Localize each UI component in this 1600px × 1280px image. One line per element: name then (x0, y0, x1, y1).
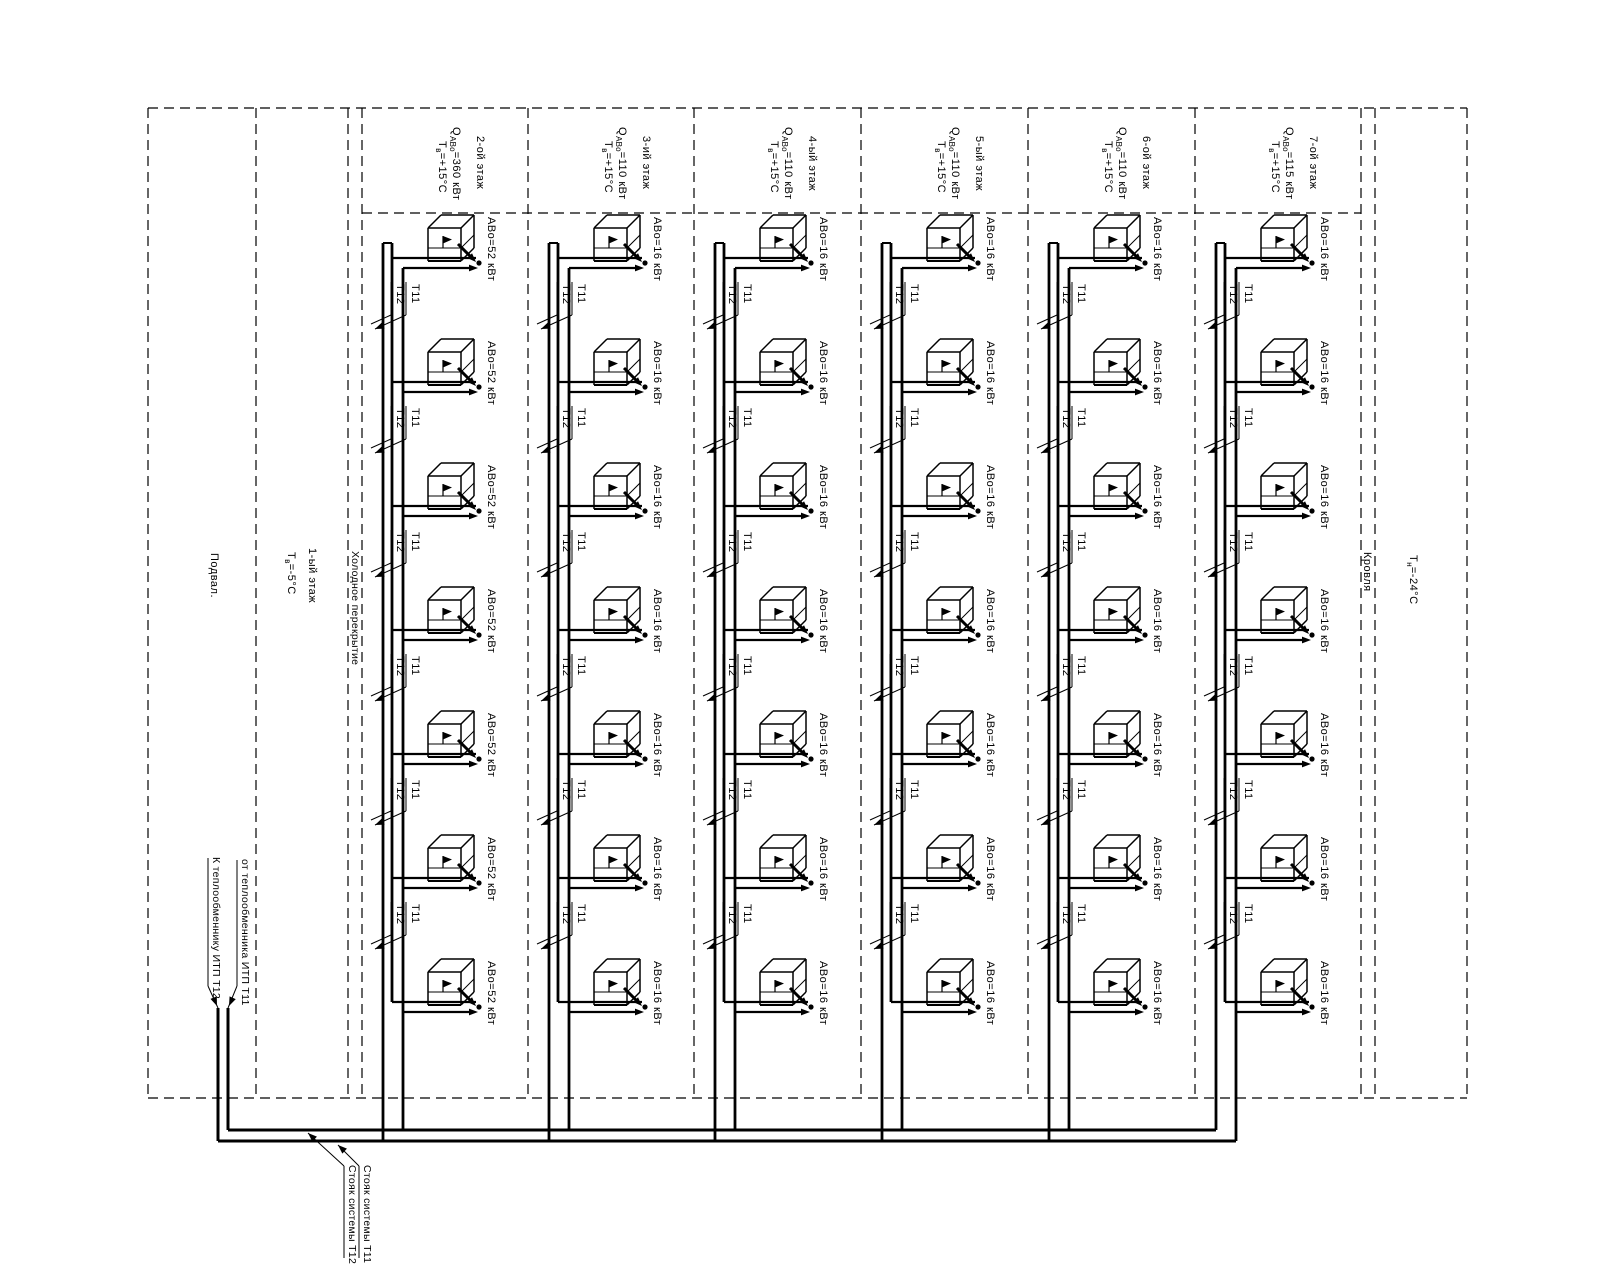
cube-edge (793, 215, 806, 228)
fan-flag-icon (1276, 980, 1285, 988)
riser-tag-return-label: Т12 (1226, 656, 1239, 676)
q-header-label: QАВо=110 кВт (615, 127, 628, 200)
cube-edge (1094, 215, 1107, 228)
riser-tag-supply-label: Т11 (1241, 780, 1254, 800)
cube-edge (760, 215, 773, 228)
riser-tag-return-label: Т12 (725, 284, 738, 304)
connection-dot (1142, 632, 1147, 637)
flow-arrow-icon (801, 885, 810, 892)
cube-edge (461, 835, 474, 848)
cube-midline (960, 359, 973, 372)
connection-dot (975, 880, 980, 885)
riser-tag-supply-label: Т11 (907, 780, 920, 800)
cube-midline (627, 855, 640, 868)
unit-power-label: АВо=52 кВт (484, 217, 497, 281)
cube-edge (627, 587, 640, 600)
riser-tag-supply-label: Т11 (907, 408, 920, 428)
riser-tag-return-label: Т12 (892, 904, 905, 924)
connection-dot (808, 880, 813, 885)
cube-midline (960, 607, 973, 620)
flow-arrow-icon (1302, 1009, 1311, 1016)
riser-tag-return-label: Т12 (559, 656, 572, 676)
flow-arrow-icon (635, 513, 644, 520)
riser-tag-supply-label: Т11 (408, 780, 421, 800)
riser-tag-return-label: Т12 (393, 284, 406, 304)
floor-header-label: 5-ый этаж (972, 136, 985, 191)
flow-arrow-icon (635, 761, 644, 768)
fan-flag-icon (775, 980, 784, 988)
cube-edge (960, 959, 973, 972)
unit-power-label: АВо=52 кВт (484, 589, 497, 653)
unit-power-label: АВо=16 кВт (650, 465, 663, 529)
fan-flag-icon (1109, 856, 1118, 864)
flow-arrow-icon (968, 1009, 977, 1016)
fan-flag-icon (1109, 732, 1118, 740)
connection-dot (1309, 880, 1314, 885)
unit-power-label: АВо=16 кВт (816, 713, 829, 777)
cube-edge (594, 215, 607, 228)
cube-edge (627, 959, 640, 972)
cube-edge (760, 587, 773, 600)
cube-midline (793, 607, 806, 620)
unit-power-label: АВо=16 кВт (983, 837, 996, 901)
fan-flag-icon (1109, 360, 1118, 368)
cube-edge (428, 711, 441, 724)
temp-header-label: Тв=+15°С (767, 141, 780, 193)
riser-tag-supply-label: Т11 (740, 532, 753, 552)
riser-tag-return-label: Т12 (559, 780, 572, 800)
riser-tag-supply-label: Т11 (1241, 408, 1254, 428)
riser-tag-supply-label: Т11 (1241, 904, 1254, 924)
q-header-label: QАВо=360 кВт (449, 127, 462, 200)
cube-midline (627, 359, 640, 372)
cube-edge (627, 463, 640, 476)
cube-edge (461, 339, 474, 352)
cube-edge (1261, 711, 1274, 724)
cube-midline (793, 235, 806, 248)
riser-tag-supply-label: Т11 (740, 656, 753, 676)
unit-power-label: АВо=16 кВт (1317, 217, 1330, 281)
fan-flag-icon (1109, 484, 1118, 492)
flow-arrow-icon (801, 1009, 810, 1016)
unit-power-label: АВо=16 кВт (1317, 713, 1330, 777)
cube-edge (760, 463, 773, 476)
cube-midline (1294, 731, 1307, 744)
unit-power-label: АВо=52 кВт (484, 341, 497, 405)
riser-tag-supply-label: Т11 (740, 284, 753, 304)
flow-arrow-icon (968, 265, 977, 272)
riser-tag-supply-label: Т11 (574, 780, 587, 800)
connection-dot (1142, 756, 1147, 761)
connection-dot (476, 1004, 481, 1009)
riser-tag-return-label: Т12 (1059, 780, 1072, 800)
cube-edge (627, 215, 640, 228)
unit-power-label: АВо=16 кВт (650, 837, 663, 901)
cube-midline (1127, 483, 1140, 496)
cube-midline (1127, 235, 1140, 248)
fan-flag-icon (609, 608, 618, 616)
cube-edge (793, 835, 806, 848)
temp-header-label: Тв=+15°С (1101, 141, 1114, 193)
floor-header-label: 7-ой этаж (1306, 136, 1319, 189)
cube-edge (1094, 587, 1107, 600)
riser-tag-return-label: Т12 (1226, 780, 1239, 800)
cube-midline (1127, 731, 1140, 744)
flow-arrow-icon (635, 637, 644, 644)
unit-power-label: АВо=16 кВт (816, 341, 829, 405)
fan-flag-icon (1276, 360, 1285, 368)
riser-tag-supply-label: Т11 (907, 532, 920, 552)
cold-slab-label: Холодное перекрытие (348, 551, 361, 665)
cube-edge (760, 835, 773, 848)
basement-label: Подвал. (207, 553, 220, 598)
unit-power-label: АВо=16 кВт (1150, 465, 1163, 529)
cube-edge (960, 339, 973, 352)
riser-tag-supply-label: Т11 (740, 780, 753, 800)
unit-power-label: АВо=16 кВт (983, 713, 996, 777)
riser-tag-supply-label: Т11 (740, 408, 753, 428)
flow-arrow-icon (1135, 389, 1144, 396)
cube-edge (1294, 587, 1307, 600)
riser-tag-return-label: Т12 (1226, 408, 1239, 428)
cube-edge (428, 463, 441, 476)
floor-header-label: 2-ой этаж (473, 136, 486, 189)
fan-flag-icon (609, 484, 618, 492)
connection-dot (642, 508, 647, 513)
unit-power-label: АВо=16 кВт (1150, 589, 1163, 653)
cube-midline (461, 979, 474, 992)
cube-edge (1261, 959, 1274, 972)
unit-power-label: АВо=52 кВт (484, 961, 497, 1025)
fan-flag-icon (1276, 732, 1285, 740)
fan-flag-icon (1109, 236, 1118, 244)
connection-dot (476, 384, 481, 389)
unit-power-label: АВо=16 кВт (983, 589, 996, 653)
cube-edge (1094, 959, 1107, 972)
cube-edge (793, 711, 806, 724)
flow-arrow-icon (1135, 513, 1144, 520)
cube-midline (461, 483, 474, 496)
riser-tag-supply-label: Т11 (574, 408, 587, 428)
fan-flag-icon (942, 856, 951, 864)
riser-tag-return-label: Т12 (559, 284, 572, 304)
riser-tag-supply-label: Т11 (574, 656, 587, 676)
unit-power-label: АВо=16 кВт (650, 589, 663, 653)
connection-dot (642, 880, 647, 885)
riser-tag-supply-label: Т11 (1241, 532, 1254, 552)
cube-midline (627, 235, 640, 248)
unit-power-label: АВо=52 кВт (484, 465, 497, 529)
cube-edge (960, 463, 973, 476)
cube-edge (793, 587, 806, 600)
riser-t12-label: Стояк системы Т12 (345, 1165, 358, 1264)
riser-tag-supply-label: Т11 (1074, 408, 1087, 428)
flow-arrow-icon (801, 389, 810, 396)
riser-tag-supply-label: Т11 (907, 284, 920, 304)
cube-edge (1094, 711, 1107, 724)
cube-edge (594, 835, 607, 848)
riser-tag-supply-label: Т11 (408, 904, 421, 924)
cube-midline (793, 855, 806, 868)
cube-midline (1127, 855, 1140, 868)
fan-flag-icon (1276, 608, 1285, 616)
cube-edge (428, 959, 441, 972)
connection-dot (808, 260, 813, 265)
cube-edge (1261, 587, 1274, 600)
connection-dot (642, 384, 647, 389)
flow-arrow-icon (801, 265, 810, 272)
riser-tag-supply-label: Т11 (740, 904, 753, 924)
riser-tag-supply-label: Т11 (1074, 904, 1087, 924)
unit-power-label: АВо=16 кВт (983, 961, 996, 1025)
fan-flag-icon (775, 856, 784, 864)
riser-tag-return-label: Т12 (725, 532, 738, 552)
fan-flag-icon (443, 236, 452, 244)
unit-power-label: АВо=16 кВт (983, 341, 996, 405)
unit-power-label: АВо=16 кВт (983, 217, 996, 281)
cube-edge (428, 339, 441, 352)
unit-power-label: АВо=16 кВт (650, 341, 663, 405)
connection-dot (476, 260, 481, 265)
connection-dot (1309, 508, 1314, 513)
riser-tag-return-label: Т12 (1059, 656, 1072, 676)
connection-dot (1309, 632, 1314, 637)
unit-power-label: АВо=16 кВт (1317, 589, 1330, 653)
riser-tag-return-label: Т12 (1059, 904, 1072, 924)
flow-arrow-icon (1135, 637, 1144, 644)
cube-edge (1294, 339, 1307, 352)
cube-edge (1094, 463, 1107, 476)
flow-arrow-icon (801, 761, 810, 768)
flow-arrow-icon (968, 637, 977, 644)
flow-arrow-icon (1302, 265, 1311, 272)
unit-power-label: АВо=16 кВт (816, 961, 829, 1025)
riser-tag-return-label: Т12 (892, 532, 905, 552)
riser-tag-return-label: Т12 (1226, 284, 1239, 304)
connection-dot (1309, 384, 1314, 389)
flow-arrow-icon (801, 513, 810, 520)
flow-arrow-icon (469, 265, 478, 272)
fan-flag-icon (775, 236, 784, 244)
flow-arrow-icon (801, 637, 810, 644)
connection-dot (476, 632, 481, 637)
fan-flag-icon (609, 732, 618, 740)
riser-tag-supply-label: Т11 (1241, 284, 1254, 304)
connection-dot (1142, 880, 1147, 885)
temp-header-label: Тв=+15°С (435, 141, 448, 193)
fan-flag-icon (775, 484, 784, 492)
unit-power-label: АВо=16 кВт (1317, 465, 1330, 529)
fan-flag-icon (443, 360, 452, 368)
riser-tag-supply-label: Т11 (1241, 656, 1254, 676)
cube-edge (627, 711, 640, 724)
unit-power-label: АВо=52 кВт (484, 713, 497, 777)
fan-flag-icon (775, 360, 784, 368)
cube-edge (428, 215, 441, 228)
cube-edge (1261, 215, 1274, 228)
riser-tag-return-label: Т12 (1226, 904, 1239, 924)
flow-arrow-icon (1302, 513, 1311, 520)
unit-power-label: АВо=16 кВт (650, 713, 663, 777)
flow-arrow-icon (635, 885, 644, 892)
cube-midline (627, 607, 640, 620)
cube-edge (461, 959, 474, 972)
cube-edge (1127, 587, 1140, 600)
cube-edge (1127, 711, 1140, 724)
cube-midline (960, 483, 973, 496)
flow-arrow-icon (469, 761, 478, 768)
fan-flag-icon (942, 608, 951, 616)
flow-arrow-icon (1135, 1009, 1144, 1016)
cube-midline (1294, 979, 1307, 992)
cube-midline (1294, 607, 1307, 620)
flow-arrow-icon (968, 761, 977, 768)
unit-power-label: АВо=16 кВт (1150, 961, 1163, 1025)
temp-header-label: Тв=+15°С (1268, 141, 1281, 193)
cube-midline (960, 855, 973, 868)
cube-edge (1094, 339, 1107, 352)
unit-power-label: АВо=16 кВт (983, 465, 996, 529)
fan-flag-icon (1276, 236, 1285, 244)
fan-flag-icon (775, 608, 784, 616)
fan-flag-icon (443, 732, 452, 740)
riser-tag-return-label: Т12 (725, 408, 738, 428)
riser-tag-return-label: Т12 (892, 408, 905, 428)
q-header-label: QАВо=110 кВт (948, 127, 961, 200)
connection-dot (476, 756, 481, 761)
cube-edge (1127, 835, 1140, 848)
riser-tag-supply-label: Т11 (408, 408, 421, 428)
fan-flag-icon (942, 732, 951, 740)
unit-power-label: АВо=16 кВт (650, 217, 663, 281)
riser-tag-supply-label: Т11 (907, 904, 920, 924)
riser-tag-return-label: Т12 (393, 904, 406, 924)
riser-tag-supply-label: Т11 (574, 284, 587, 304)
cube-edge (594, 339, 607, 352)
flow-arrow-icon (635, 389, 644, 396)
cube-edge (627, 835, 640, 848)
cube-midline (793, 483, 806, 496)
cube-edge (927, 959, 940, 972)
cube-midline (1127, 359, 1140, 372)
cube-edge (760, 959, 773, 972)
cube-edge (461, 215, 474, 228)
flow-arrow-icon (1135, 265, 1144, 272)
cube-midline (1127, 979, 1140, 992)
connection-dot (975, 260, 980, 265)
fan-flag-icon (609, 360, 618, 368)
cube-edge (927, 587, 940, 600)
cube-edge (760, 711, 773, 724)
floor-header-label: 3-ий этаж (639, 136, 652, 189)
cube-midline (627, 979, 640, 992)
connection-dot (975, 508, 980, 513)
flow-arrow-icon (1135, 761, 1144, 768)
flow-arrow-icon (229, 996, 236, 1006)
riser-tag-supply-label: Т11 (574, 904, 587, 924)
cube-edge (1127, 215, 1140, 228)
connection-dot (476, 880, 481, 885)
flow-arrow-icon (1302, 637, 1311, 644)
cube-edge (1294, 215, 1307, 228)
cube-edge (428, 587, 441, 600)
connection-dot (975, 384, 980, 389)
cube-edge (594, 711, 607, 724)
flow-arrow-icon (968, 885, 977, 892)
connection-dot (808, 384, 813, 389)
fan-flag-icon (1109, 980, 1118, 988)
connection-dot (975, 756, 980, 761)
connection-dot (975, 1004, 980, 1009)
cube-edge (793, 463, 806, 476)
fan-flag-icon (942, 360, 951, 368)
cube-edge (1127, 959, 1140, 972)
riser-t11-label: Стояк системы Т11 (360, 1165, 373, 1263)
fan-flag-icon (609, 980, 618, 988)
fan-flag-icon (775, 732, 784, 740)
riser-tag-supply-label: Т11 (1074, 532, 1087, 552)
cube-edge (627, 339, 640, 352)
q-header-label: QАВо=110 кВт (781, 127, 794, 200)
cube-edge (927, 463, 940, 476)
floor1-label: 1-ый этаж (305, 548, 318, 603)
fan-flag-icon (443, 980, 452, 988)
connection-dot (1142, 1004, 1147, 1009)
riser-tag-return-label: Т12 (393, 780, 406, 800)
cube-edge (594, 959, 607, 972)
fan-flag-icon (942, 980, 951, 988)
riser-tag-return-label: Т12 (1059, 284, 1072, 304)
connection-dot (808, 632, 813, 637)
cube-midline (1294, 855, 1307, 868)
connection-dot (642, 756, 647, 761)
cube-edge (1294, 835, 1307, 848)
unit-power-label: АВо=16 кВт (816, 465, 829, 529)
cube-midline (627, 731, 640, 744)
riser-tag-return-label: Т12 (892, 284, 905, 304)
riser-tag-supply-label: Т11 (1074, 656, 1087, 676)
connection-dot (1142, 260, 1147, 265)
flow-arrow-icon (968, 389, 977, 396)
unit-power-label: АВо=16 кВт (1150, 713, 1163, 777)
temp-header-label: Тв=+15°С (601, 141, 614, 193)
q-header-label: QАВо=110 кВт (1115, 127, 1128, 200)
connection-dot (642, 1004, 647, 1009)
cube-edge (461, 587, 474, 600)
cube-edge (793, 339, 806, 352)
temp-header-label: Тв=+15°С (934, 141, 947, 193)
riser-tag-supply-label: Т11 (408, 656, 421, 676)
connection-dot (1309, 1004, 1314, 1009)
unit-power-label: АВо=16 кВт (1150, 837, 1163, 901)
cube-midline (1294, 359, 1307, 372)
fan-flag-icon (443, 484, 452, 492)
cube-edge (594, 463, 607, 476)
fan-flag-icon (1109, 608, 1118, 616)
cube-edge (927, 835, 940, 848)
floor1-temp-label: Тв=-5°С (284, 552, 297, 595)
q-header-label: QАВо=115 кВт (1282, 127, 1295, 200)
riser-tag-return-label: Т12 (725, 780, 738, 800)
connection-dot (808, 1004, 813, 1009)
connection-dot (642, 632, 647, 637)
unit-power-label: АВо=52 кВт (484, 837, 497, 901)
connection-dot (642, 260, 647, 265)
connection-dot (1142, 384, 1147, 389)
unit-power-label: АВо=16 кВт (650, 961, 663, 1025)
flow-arrow-icon (469, 513, 478, 520)
schematic-linework (0, 0, 1600, 1280)
